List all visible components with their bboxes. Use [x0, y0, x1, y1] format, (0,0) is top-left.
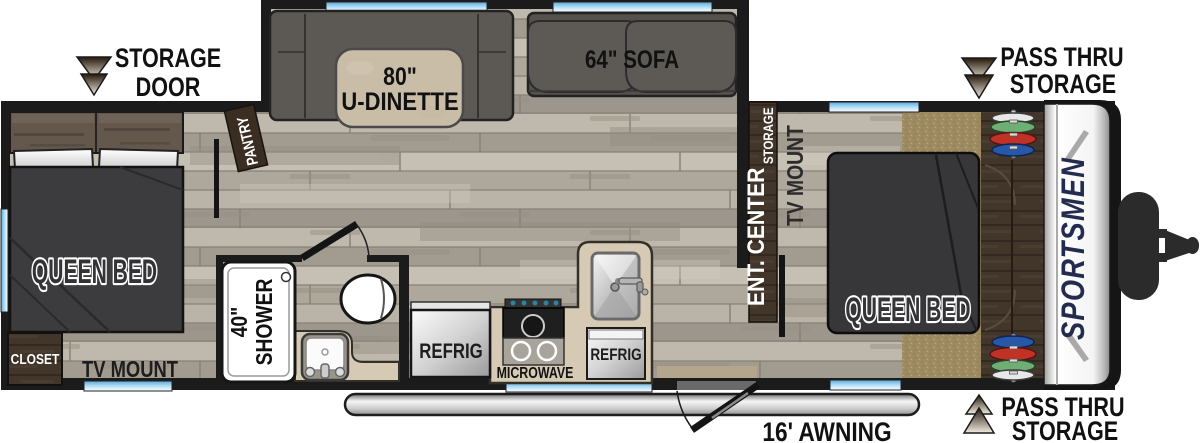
- svg-text:CLOSET: CLOSET: [11, 351, 60, 368]
- svg-text:64" SOFA: 64" SOFA: [585, 45, 679, 73]
- svg-text:STORAGE: STORAGE: [1012, 417, 1118, 443]
- svg-text:STORAGE: STORAGE: [761, 108, 776, 164]
- svg-text:PASS THRU: PASS THRU: [1000, 43, 1123, 73]
- svg-text:TV MOUNT: TV MOUNT: [784, 125, 809, 226]
- svg-text:STORAGE: STORAGE: [115, 44, 221, 74]
- svg-text:REFRIG: REFRIG: [590, 346, 641, 365]
- svg-text:STORAGE: STORAGE: [1010, 70, 1116, 100]
- svg-text:SHOWER: SHOWER: [253, 279, 278, 366]
- svg-text:DOOR: DOOR: [136, 73, 201, 103]
- svg-text:SPORTSMEN: SPORTSMEN: [1056, 157, 1092, 340]
- svg-text:REFRIG: REFRIG: [419, 340, 482, 363]
- svg-text:ENT. CENTER: ENT. CENTER: [743, 168, 770, 306]
- svg-text:QUEEN BED: QUEEN BED: [845, 290, 970, 328]
- svg-text:80": 80": [383, 62, 417, 90]
- svg-text:QUEEN BED: QUEEN BED: [32, 252, 157, 290]
- svg-text:U-DINETTE: U-DINETTE: [341, 88, 458, 116]
- svg-text:40": 40": [228, 307, 253, 338]
- svg-text:16' AWNING: 16' AWNING: [762, 417, 891, 443]
- svg-text:MICROWAVE: MICROWAVE: [497, 364, 574, 382]
- svg-text:TV MOUNT: TV MOUNT: [82, 357, 178, 382]
